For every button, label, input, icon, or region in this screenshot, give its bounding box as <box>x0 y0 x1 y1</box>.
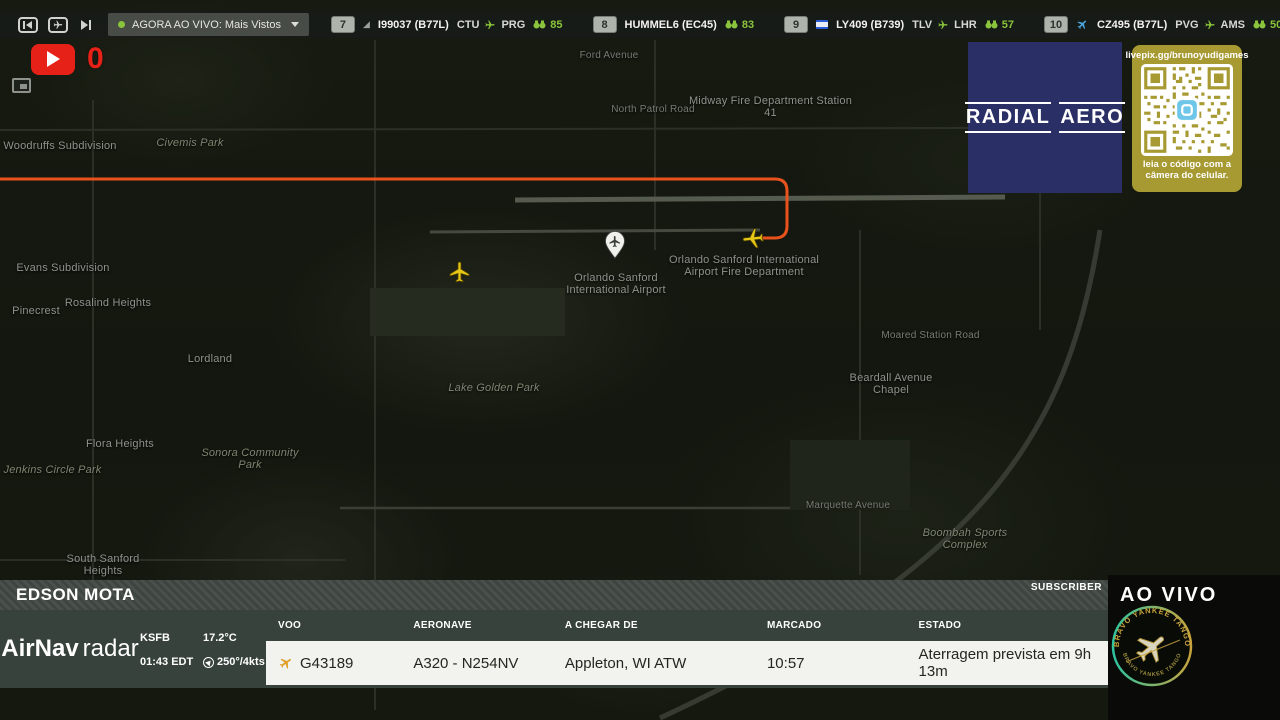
route-plane-icon <box>1204 19 1216 31</box>
ticker-flight-9[interactable]: 9 LY409 (B739) TLV LHR 57 <box>784 16 1014 33</box>
donation-qr-card: livepix.gg/brunoyudigames leia o código … <box>1132 45 1242 192</box>
station-weather-block: KSFB 17.2°C 01:43 EDT 250°/4kts <box>140 610 266 688</box>
flight-route: TLV LHR <box>912 19 977 31</box>
sponsor-logo-radial-aero: RADIAL AERO <box>968 42 1122 193</box>
live-dot-icon <box>118 21 125 28</box>
streamer-name: EDSON MOTA <box>16 585 135 605</box>
ticker-flight-8[interactable]: 8 HUMMEL6 (EC45) 83 <box>593 16 755 33</box>
map-label: Orlando Sanford International Airport <box>552 272 680 296</box>
map-label: Woodruffs Subdivision <box>0 140 120 152</box>
airline-plane-icon <box>1076 18 1089 31</box>
route-plane-icon <box>484 19 496 31</box>
flight-callsign: CZ495 (B77L) <box>1097 19 1167 31</box>
flight-rank-badge: 9 <box>784 16 808 33</box>
flight-route: CTU PRG <box>457 19 525 31</box>
binoculars-icon <box>985 20 998 29</box>
map-label: Boombah Sports Complex <box>915 527 1015 551</box>
cell-a-chegar-de: Appleton, WI ATW <box>565 655 767 672</box>
live-dropdown-label: AGORA AO VIVO: Mais Vistos <box>132 19 281 31</box>
route-plane-icon <box>937 19 949 31</box>
skip-next-icon[interactable] <box>78 17 94 33</box>
map-label: Lake Golden Park <box>438 382 550 394</box>
table-row[interactable]: G43189 A320 - N254NV Appleton, WI ATW 10… <box>266 641 1108 685</box>
map-label: Marquette Avenue <box>793 500 903 512</box>
map-label: Jenkins Circle Park <box>0 464 105 476</box>
binoculars-icon <box>1253 20 1266 29</box>
departure-plane-icon <box>278 656 294 670</box>
header-estado: ESTADO <box>919 620 1108 631</box>
map-label: South Sanford Heights <box>48 553 158 577</box>
airline-flag-icon <box>816 20 828 29</box>
binoculars-icon <box>533 20 546 29</box>
airport-pin[interactable] <box>606 232 625 259</box>
flight-callsign: LY409 (B739) <box>836 19 904 31</box>
sponsor-word-aero: AERO <box>1059 102 1125 133</box>
station-time: 01:43 EDT <box>140 656 203 668</box>
map-label: Rosalind Heights <box>58 297 158 309</box>
header-a-chegar-de: A CHEGAR DE <box>565 620 767 631</box>
header-aeronave: AERONAVE <box>413 620 565 631</box>
streamer-strip: EDSON MOTA SUBSCRIBER <box>0 580 1108 610</box>
station-temp: 17.2°C <box>203 632 266 644</box>
youtube-icon[interactable] <box>31 44 75 75</box>
map-label: Flora Heights <box>70 438 170 450</box>
live-mode-dropdown[interactable]: AGORA AO VIVO: Mais Vistos <box>108 13 309 36</box>
header-voo: VOO <box>266 620 413 631</box>
chevron-down-icon <box>291 22 299 27</box>
map-label: Beardall Avenue Chapel <box>836 372 946 396</box>
map-label: Civemis Park <box>140 137 240 149</box>
map-label: Ford Avenue <box>563 50 655 62</box>
plane-mode-icon[interactable] <box>48 17 68 33</box>
station-wind: 250°/4kts <box>203 656 266 668</box>
viewer-count: 83 <box>725 19 754 31</box>
bravo-yankee-tango-badge: BRAVO YANKEE TANGO BRAVO YANKEE TANGO <box>1110 604 1194 688</box>
wind-direction-icon <box>203 657 214 668</box>
signal-icon: ◢ <box>363 20 370 29</box>
skip-previous-icon[interactable] <box>18 17 38 33</box>
flight-table-header: VOO AERONAVE A CHEGAR DE MARCADO ESTADO <box>266 610 1108 641</box>
station-code: KSFB <box>140 632 203 644</box>
viewer-count: 57 <box>985 19 1014 31</box>
cell-voo: G43189 <box>300 655 353 672</box>
flight-rank-badge: 10 <box>1044 16 1068 33</box>
map-label: Moared Station Road <box>858 330 1003 342</box>
map-label: Evans Subdivision <box>8 262 118 274</box>
cell-estado: Aterragem prevista em 9h 13m <box>919 646 1108 680</box>
viewer-count: 50 <box>1253 19 1280 31</box>
youtube-counter: 0 <box>31 42 104 76</box>
binoculars-icon <box>725 20 738 29</box>
map-label: Orlando Sanford International Airport Fi… <box>668 254 820 278</box>
youtube-count: 0 <box>87 42 104 76</box>
qr-url: livepix.gg/brunoyudigames <box>1126 50 1249 61</box>
map-label: North Patrol Road <box>598 104 708 116</box>
flight-table: VOO AERONAVE A CHEGAR DE MARCADO ESTADO … <box>266 610 1108 688</box>
flight-rank-badge: 8 <box>593 16 617 33</box>
airnav-logo: AirNav radar <box>0 610 140 688</box>
map-label: Lordland <box>172 353 248 365</box>
livepix-logo-icon <box>1177 100 1197 120</box>
airnav-info-bar: AirNav radar KSFB 17.2°C 01:43 EDT 250°/… <box>0 610 1108 688</box>
sponsor-word-radial: RADIAL <box>965 102 1052 133</box>
viewer-count: 85 <box>533 19 562 31</box>
header-marcado: MARCADO <box>767 620 919 631</box>
stream-frame: Woodruffs Subdivision Civemis Park Evans… <box>0 0 1280 720</box>
cell-aeronave: A320 - N254NV <box>413 655 565 672</box>
flight-route: PVG AMS <box>1175 19 1245 31</box>
live-zone: AO VIVO BRAVO YANKEE TANGO BRAVO YANKEE … <box>1108 575 1280 720</box>
flight-rank-badge: 7 <box>331 16 355 33</box>
flight-ticker-bar: AGORA AO VIVO: Mais Vistos 7 ◢ I99037 (B… <box>0 11 1280 38</box>
flight-callsign: HUMMEL6 (EC45) <box>625 19 717 31</box>
qr-caption: leia o código com a câmera do celular. <box>1143 159 1231 181</box>
picture-in-picture-icon[interactable] <box>12 78 31 93</box>
cell-marcado: 10:57 <box>767 655 919 672</box>
map-label: Midway Fire Department Station 41 <box>688 95 853 119</box>
map-label: Sonora Community Park <box>195 447 305 471</box>
qr-code <box>1141 64 1233 156</box>
ticker-flight-7[interactable]: 7 ◢ I99037 (B77L) CTU PRG 85 <box>331 16 563 33</box>
aircraft-marker-north[interactable] <box>450 262 469 282</box>
ticker-flight-10[interactable]: 10 CZ495 (B77L) PVG AMS 50 <box>1044 16 1280 33</box>
flight-callsign: I99037 (B77L) <box>378 19 449 31</box>
subscriber-label: SUBSCRIBER <box>1031 582 1102 593</box>
